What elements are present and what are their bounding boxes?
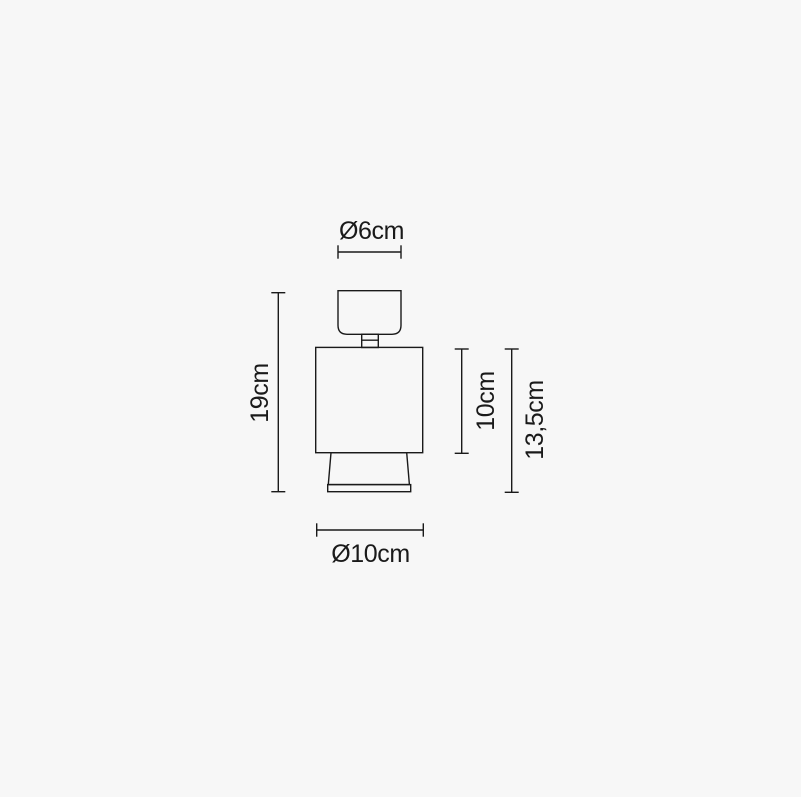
- dim-body-base-height-label: 13,5cm: [521, 380, 549, 460]
- dim-top-diameter: Ø6cm: [338, 217, 404, 259]
- base-outline: [328, 453, 409, 485]
- canopy-outline: [338, 291, 401, 335]
- diagram-canvas: Ø6cm 19cm 10cm 13,5cm Ø10cm: [0, 0, 801, 797]
- dim-body-base-height: 13,5cm: [505, 349, 549, 492]
- dim-bottom-diameter-label: Ø10cm: [331, 540, 410, 568]
- body-outline: [316, 347, 423, 452]
- dim-total-height: 19cm: [246, 293, 285, 492]
- dim-body-height: 10cm: [455, 349, 500, 453]
- base-rim-outline: [328, 485, 411, 492]
- lamp-dimension-drawing: Ø6cm 19cm 10cm 13,5cm Ø10cm: [0, 0, 801, 797]
- dim-top-diameter-label: Ø6cm: [339, 217, 404, 245]
- lamp-outline: [316, 291, 423, 492]
- dim-bottom-diameter: Ø10cm: [317, 523, 424, 568]
- dim-total-height-label: 19cm: [246, 363, 274, 423]
- dim-body-height-label: 10cm: [472, 371, 500, 431]
